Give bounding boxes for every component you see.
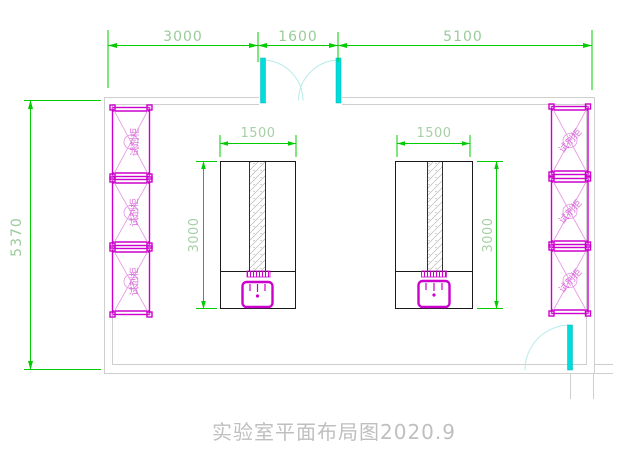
dim-top-door: 1600 <box>278 29 318 45</box>
sink-symbol <box>243 271 273 307</box>
dim-left-height: 5370 <box>9 217 25 257</box>
reagent-cabinet-cell: 试剂柜 <box>110 246 152 317</box>
reagent-cabinet-column-right: 试剂柜 试剂柜 试剂柜 <box>549 104 591 316</box>
cabinet-label: 试剂柜 <box>129 127 141 156</box>
reagent-cabinet-cell: 试剂柜 <box>110 177 152 248</box>
cad-floor-plan: 3000 1600 5100 5370 试剂柜 <box>0 0 619 469</box>
room-walls <box>105 93 614 399</box>
reagent-cabinet-cell: 试剂柜 <box>549 176 591 247</box>
bench-left-dimensions: 1500 3000 <box>187 126 296 309</box>
reagent-shelf-strip <box>250 162 266 272</box>
reagent-cabinet-column-left: 试剂柜 试剂柜 试剂柜 <box>110 105 152 317</box>
dim-top-left: 3000 <box>163 29 203 45</box>
left-dimension: 5370 <box>9 100 101 370</box>
dim-bench-depth: 3000 <box>187 217 202 252</box>
bench-right-dimensions: 1500 3000 <box>397 126 503 309</box>
dim-bench-width: 1500 <box>416 126 451 141</box>
cabinet-label: 试剂柜 <box>556 126 584 156</box>
door-leaf-left <box>261 58 266 103</box>
reagent-cabinet-cell: 试剂柜 <box>110 105 152 179</box>
reagent-cabinet-cell: 试剂柜 <box>549 104 591 177</box>
door-leaf <box>568 325 573 370</box>
cabinet-label: 试剂柜 <box>129 198 141 227</box>
reagent-cabinet-cell: 试剂柜 <box>549 245 591 316</box>
cabinet-label: 试剂柜 <box>556 266 584 296</box>
reagent-shelf-strip <box>428 162 443 272</box>
dim-bench-depth: 3000 <box>481 217 496 252</box>
door-leaf-right <box>336 58 341 103</box>
floor-plan-drawing: 3000 1600 5100 5370 试剂柜 <box>0 0 619 469</box>
drawing-title: 实验室平面布局图2020.9 <box>212 416 472 452</box>
single-side-door <box>525 325 573 370</box>
lab-bench-right <box>396 162 473 309</box>
door-swing-arc <box>525 325 570 370</box>
dim-bench-width: 1500 <box>240 126 275 141</box>
lab-bench-left <box>221 162 296 309</box>
cabinet-label: 试剂柜 <box>556 197 584 227</box>
cabinet-label: 试剂柜 <box>129 267 141 296</box>
dim-top-right: 5100 <box>443 29 483 45</box>
sink-symbol <box>419 271 450 307</box>
top-dimension-chain: 3000 1600 5100 <box>108 29 592 90</box>
